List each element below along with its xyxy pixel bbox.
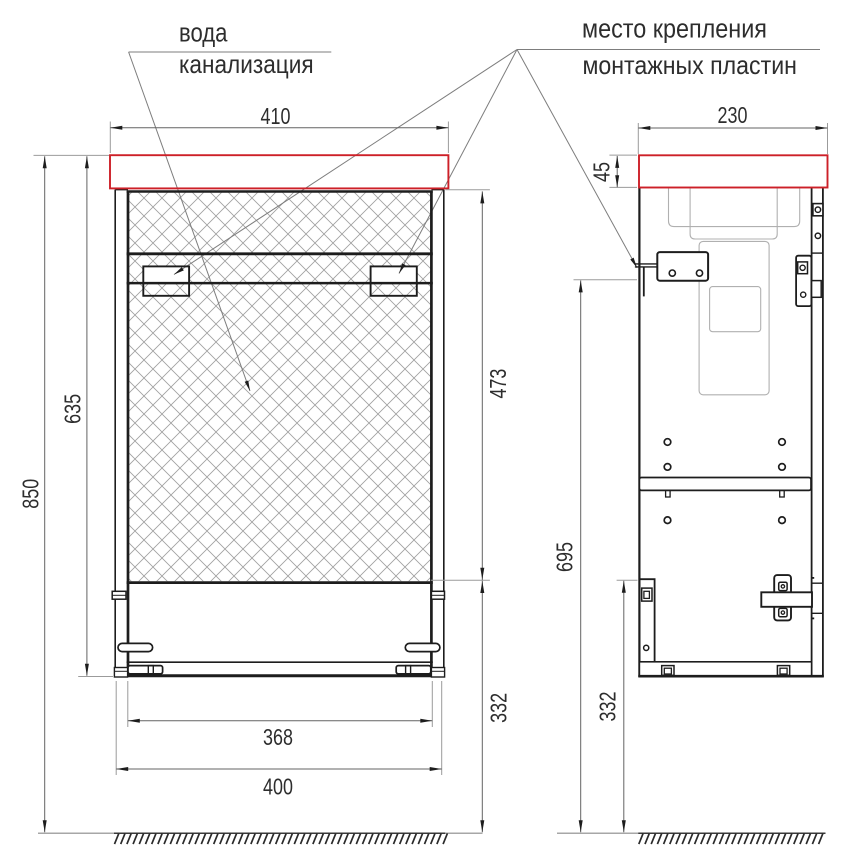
- svg-text:473: 473: [486, 369, 512, 399]
- svg-text:332: 332: [595, 692, 621, 722]
- svg-text:635: 635: [60, 394, 86, 424]
- svg-text:368: 368: [263, 725, 293, 751]
- svg-text:850: 850: [18, 479, 44, 509]
- svg-text:410: 410: [261, 104, 291, 130]
- svg-text:695: 695: [552, 542, 578, 572]
- svg-text:45: 45: [589, 162, 615, 182]
- svg-text:монтажных пластин: монтажных пластин: [583, 52, 797, 81]
- svg-text:место крепления: место крепления: [582, 15, 767, 43]
- svg-text:вода: вода: [179, 19, 228, 48]
- svg-text:400: 400: [263, 774, 293, 800]
- svg-text:332: 332: [486, 693, 512, 723]
- svg-text:канализация: канализация: [179, 50, 314, 79]
- svg-text:230: 230: [718, 103, 748, 129]
